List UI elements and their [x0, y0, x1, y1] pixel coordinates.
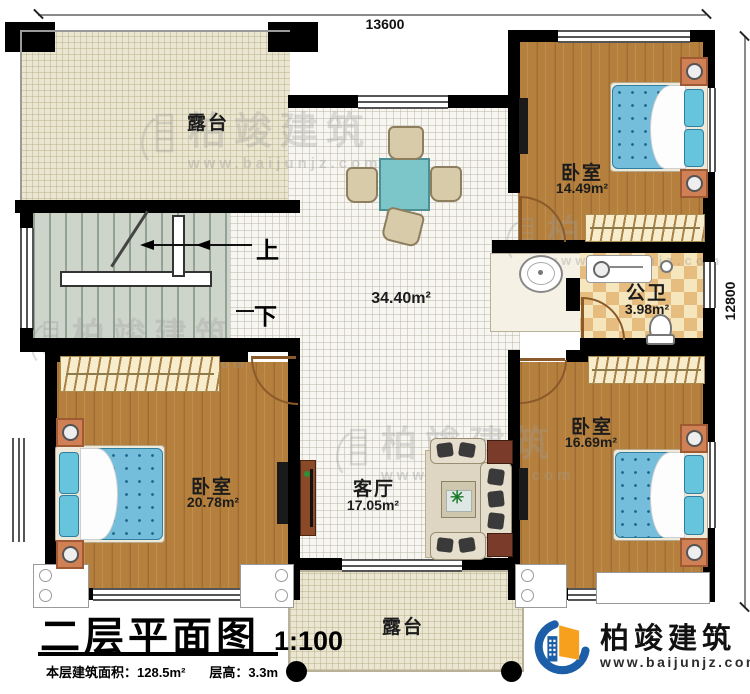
stairs-up-label: 上	[256, 231, 279, 265]
side-table	[487, 440, 513, 464]
stair-direction-line	[236, 310, 254, 312]
bed-pillow	[59, 452, 79, 494]
wall	[508, 30, 558, 42]
brand-name: 柏竣建筑	[600, 624, 750, 654]
shower-head	[660, 260, 673, 273]
window	[20, 228, 34, 330]
porch-base	[515, 564, 567, 608]
sofa-chaise	[430, 532, 486, 560]
brand-logo: 柏竣建筑 www.baijunjz.com	[532, 618, 750, 676]
bed-blanket	[80, 448, 118, 540]
nightstand	[56, 418, 84, 447]
wardrobe	[588, 356, 705, 384]
dimension-top-value: 13600	[355, 16, 415, 32]
floor-plan-canvas: 柏竣建筑 www.baijunjz.com 柏竣建筑 www.baijunjz.…	[0, 0, 750, 694]
hall-area: 34.40m²	[360, 290, 442, 308]
bed-pillow	[684, 89, 704, 127]
wall-column	[268, 22, 318, 52]
stair-handrail	[60, 271, 212, 287]
window	[703, 262, 716, 308]
wall	[20, 210, 33, 230]
terrace-railing	[20, 30, 22, 205]
porch-base	[33, 564, 89, 608]
nightstand	[680, 424, 708, 453]
stair-arrow	[140, 240, 154, 250]
door-leaf	[520, 358, 565, 361]
dimension-line-right	[744, 36, 746, 608]
wall	[288, 95, 358, 108]
tv-bedroom-bottom-right	[519, 468, 528, 520]
room-area-bathroom: 3.98m²	[613, 301, 681, 317]
side-table	[487, 533, 513, 557]
wall-column	[5, 22, 55, 52]
bed-pillow	[684, 455, 704, 494]
coffee-table: ✳	[441, 481, 476, 518]
porch-base	[596, 572, 710, 604]
wall	[296, 558, 342, 570]
door-leaf	[251, 356, 296, 359]
window	[93, 588, 248, 601]
toilet-base	[646, 334, 675, 345]
plan-scale: 1:100	[274, 626, 343, 657]
brand-url: www.baijunjz.com	[600, 654, 750, 670]
sofa-main	[480, 462, 512, 538]
floor-area-stat: 本层建筑面积：128.5m²	[46, 662, 185, 681]
title-underline	[38, 652, 278, 656]
window	[358, 95, 448, 109]
stair-handrail-post	[172, 215, 185, 277]
bed-pillow	[684, 496, 704, 535]
tv-bedroom-bottom-left	[277, 462, 288, 524]
nightstand	[56, 540, 84, 569]
room-label-terrace-bottom: 露台	[368, 612, 438, 639]
washbasin	[519, 255, 563, 293]
floor-height-stat: 层高：3.3m	[209, 662, 278, 681]
dining-chair	[346, 167, 378, 203]
column	[501, 661, 522, 682]
room-area-bedroom-bottom-left: 20.78m²	[178, 494, 248, 510]
porch-base	[240, 564, 294, 608]
bed-blanket	[650, 85, 686, 169]
tv-cabinet-living	[300, 460, 316, 536]
room-label-terrace-top: 露台	[168, 108, 248, 135]
plant-icon: ✳	[450, 488, 468, 506]
column	[286, 661, 307, 682]
nightstand	[680, 169, 708, 198]
window	[12, 438, 25, 542]
dining-table	[379, 158, 430, 211]
door-leaf	[519, 196, 522, 240]
terrace-railing	[20, 30, 290, 32]
tv-bedroom-top-right	[519, 98, 528, 154]
brand-logo-icon	[532, 618, 590, 676]
bed-pillow	[59, 495, 79, 537]
nightstand	[680, 538, 708, 567]
nightstand	[680, 57, 708, 86]
plan-stats: 本层建筑面积：128.5m² 层高：3.3m	[46, 662, 278, 681]
dining-chair	[430, 166, 462, 202]
room-area-living: 17.05m²	[338, 497, 408, 513]
wardrobe	[585, 214, 705, 242]
window	[558, 30, 690, 43]
room-area-bedroom-top-right: 14.49m²	[548, 180, 616, 196]
terrace-top-floor	[20, 32, 290, 205]
dining-chair	[388, 126, 424, 160]
sliding-door	[342, 559, 462, 572]
dimension-right-value: 12800	[722, 271, 738, 331]
bed-blanket	[650, 452, 685, 538]
stair-arrow	[196, 240, 210, 250]
room-area-bedroom-bottom-right: 16.69m²	[556, 434, 626, 450]
wall	[566, 278, 580, 311]
stairs-down-label: 下	[254, 297, 277, 331]
sofa-chaise	[430, 438, 486, 464]
wardrobe	[60, 356, 220, 392]
door-leaf	[581, 297, 584, 338]
bed-pillow	[684, 129, 704, 167]
wall	[15, 200, 300, 213]
